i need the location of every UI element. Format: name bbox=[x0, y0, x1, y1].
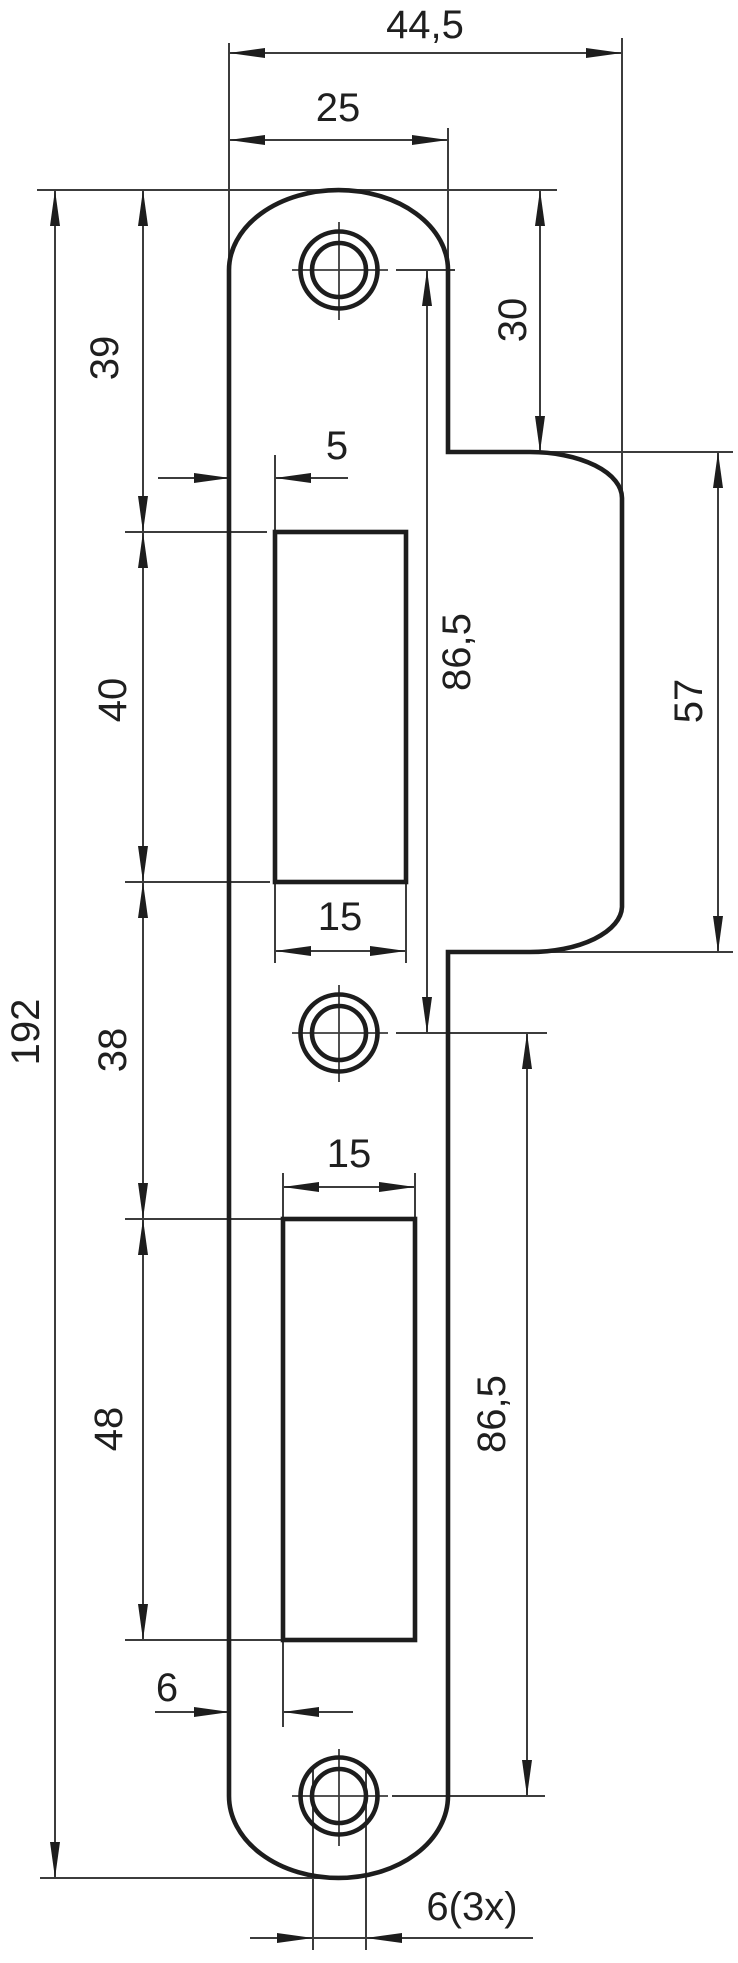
dim-lower-cutout-width-label: 15 bbox=[327, 1132, 372, 1176]
arrow-right-icon bbox=[277, 1933, 313, 1943]
dim-hole-diameter-label: 6(3x) bbox=[426, 1885, 517, 1929]
arrow-down-icon bbox=[522, 1760, 532, 1796]
arrow-down-icon bbox=[138, 846, 148, 882]
dim-lip-top-offset-label: 30 bbox=[491, 298, 535, 343]
arrow-left-icon bbox=[275, 946, 311, 956]
arrow-left-icon bbox=[366, 1933, 402, 1943]
arrow-left-icon bbox=[283, 1182, 319, 1192]
arrow-left-icon bbox=[283, 1707, 319, 1717]
upper-cutout bbox=[275, 532, 406, 882]
arrow-left-icon bbox=[229, 48, 265, 58]
arrow-down-icon bbox=[422, 997, 432, 1033]
dim-overall-width-label: 44,5 bbox=[386, 3, 464, 47]
arrow-right-icon bbox=[194, 473, 230, 483]
arrow-up-icon bbox=[138, 882, 148, 918]
dim-top-to-upper-cutout-label: 39 bbox=[83, 336, 127, 381]
arrow-up-icon bbox=[522, 1033, 532, 1069]
drawing-svg: 44,5 25 5 15 15 6 6(3x) 39 40 38 48 192 … bbox=[0, 0, 738, 1963]
dim-lip-height-label: 57 bbox=[667, 679, 711, 724]
arrow-right-icon bbox=[586, 48, 622, 58]
dim-plate-width-label: 25 bbox=[316, 86, 361, 130]
dim-upper-cutout-offset-label: 5 bbox=[326, 424, 348, 468]
arrow-down-icon bbox=[138, 496, 148, 532]
dim-upper-hole-pitch-label: 86,5 bbox=[435, 613, 479, 691]
dim-lower-cutout-offset-label: 6 bbox=[156, 1666, 178, 1710]
arrow-down-icon bbox=[50, 1842, 60, 1878]
dim-lower-hole-pitch-label: 86,5 bbox=[470, 1375, 514, 1453]
arrow-up-icon bbox=[138, 1219, 148, 1255]
dim-upper-cutout-height-label: 40 bbox=[91, 678, 135, 723]
arrow-up-icon bbox=[713, 452, 723, 488]
arrow-up-icon bbox=[138, 190, 148, 226]
extension-lines bbox=[37, 38, 733, 1950]
lower-cutout bbox=[283, 1219, 415, 1640]
arrow-up-icon bbox=[50, 190, 60, 226]
dim-upper-cutout-width-label: 15 bbox=[318, 895, 363, 939]
strike-plate-drawing: 44,5 25 5 15 15 6 6(3x) 39 40 38 48 192 … bbox=[0, 0, 738, 1963]
arrow-down-icon bbox=[535, 416, 545, 452]
arrow-up-icon bbox=[422, 270, 432, 306]
dim-between-cutouts-label: 38 bbox=[91, 1028, 135, 1073]
dimension-lines bbox=[55, 53, 718, 1938]
arrow-right-icon bbox=[412, 135, 448, 145]
arrow-down-icon bbox=[138, 1604, 148, 1640]
arrow-left-icon bbox=[275, 473, 311, 483]
arrow-down-icon bbox=[713, 916, 723, 952]
dim-total-height-label: 192 bbox=[4, 999, 48, 1066]
dim-lower-cutout-height-label: 48 bbox=[87, 1407, 131, 1452]
arrow-left-icon bbox=[229, 135, 265, 145]
arrow-right-icon bbox=[370, 946, 406, 956]
arrow-up-icon bbox=[138, 532, 148, 568]
arrow-up-icon bbox=[535, 190, 545, 226]
arrow-right-icon bbox=[379, 1182, 415, 1192]
arrow-right-icon bbox=[194, 1707, 230, 1717]
arrow-down-icon bbox=[138, 1183, 148, 1219]
